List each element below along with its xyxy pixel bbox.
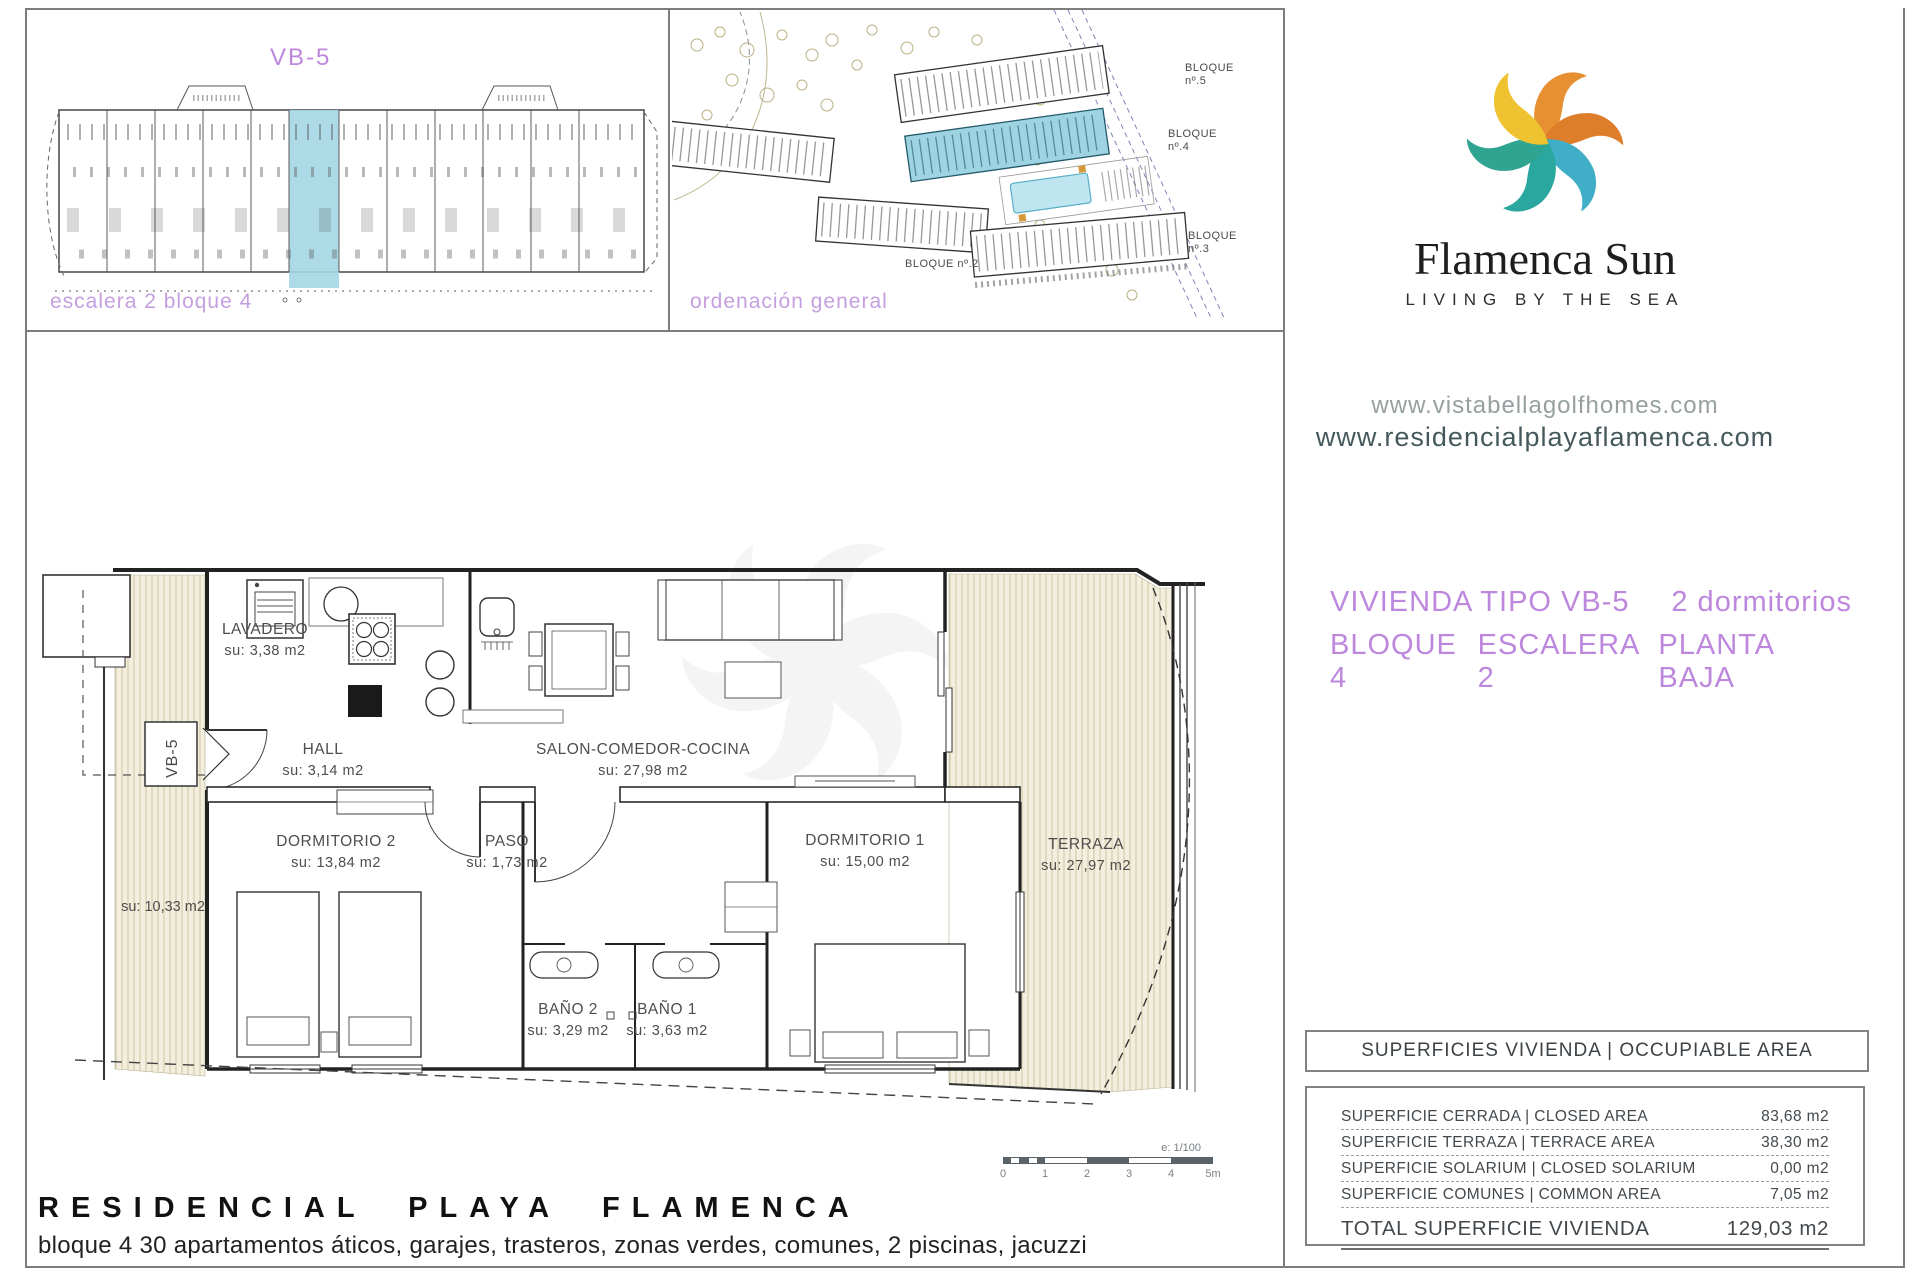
site-label-bloque3: BLOQUE nº.3 <box>1188 230 1237 255</box>
brand-name: Flamenca Sun <box>1285 232 1805 285</box>
site-plan-caption: ordenación general <box>690 290 888 314</box>
flamenca-sun-logo <box>1465 62 1625 222</box>
scale-tick: 3 <box>1126 1168 1132 1180</box>
room-label-salon: SALON-COMEDOR-COCINA su: 27,98 m2 <box>536 739 750 781</box>
url-residencialplayaflamenca[interactable]: www.residencialplayaflamenca.com <box>1285 422 1805 453</box>
footer-title: RESIDENCIAL PLAYA FLAMENCA <box>38 1192 861 1225</box>
room-label-lavadero: LAVADERO su: 3,38 m2 <box>222 619 308 661</box>
floor-plan-drawing: VB-5 <box>25 332 1285 1268</box>
scale-tick: 4 <box>1168 1168 1174 1180</box>
site-label-bloque4: BLOQUE nº.4 <box>1168 128 1217 153</box>
site-plan-drawing <box>672 10 1283 330</box>
brand-tagline: LIVING BY THE SEA <box>1285 290 1805 310</box>
site-label-bloque5: BLOQUE nº.5 <box>1185 62 1234 87</box>
url-vistabellagolfhomes[interactable]: www.vistabellagolfhomes.com <box>1285 392 1805 420</box>
block-plan-drawing <box>27 10 667 330</box>
divider-panels <box>668 8 670 332</box>
room-label-bano1: BAÑO 1 su: 3,63 m2 <box>626 999 707 1041</box>
surfaces-table: SUPERFICIE CERRADA | CLOSED AREA 83,68 m… <box>1305 1086 1865 1246</box>
unit-type: VIVIENDA TIPO VB-5 <box>1330 586 1630 619</box>
room-label-paso: PASO su: 1,73 m2 <box>466 831 547 873</box>
frame-right <box>1903 8 1905 1268</box>
side-terrace-area-label: su: 10,33 m2 <box>121 899 205 915</box>
table-row-closed-area: SUPERFICIE CERRADA | CLOSED AREA 83,68 m… <box>1341 1104 1829 1130</box>
unit-floor: PLANTA BAJA <box>1658 629 1852 695</box>
room-label-hall: HALL su: 3,14 m2 <box>282 739 363 781</box>
table-row-terrace-area: SUPERFICIE TERRAZA | TERRACE AREA 38,30 … <box>1341 1130 1829 1156</box>
table-row-common-area: SUPERFICIE COMUNES | COMMON AREA 7,05 m2 <box>1341 1182 1829 1208</box>
brochure-page: VB-5 escalera 2 bloque 4 <box>0 0 1920 1280</box>
site-label-bloque2: BLOQUE nº.2 <box>905 258 979 271</box>
footer-subtitle: bloque 4 30 apartamentos áticos, garajes… <box>38 1232 1087 1260</box>
unit-header: VIVIENDA TIPO VB-5 2 dormitorios BLOQUE … <box>1330 586 1852 705</box>
scale-tick: 1 <box>1042 1168 1048 1180</box>
room-label-terraza: TERRAZA su: 27,97 m2 <box>1041 834 1131 876</box>
scale-tick: 2 <box>1084 1168 1090 1180</box>
scale-bar: e: 1/100 0 1 2 3 4 5m <box>1003 1142 1215 1182</box>
floorplan-vb5-tag: VB-5 <box>164 738 181 778</box>
unit-stair: ESCALERA 2 <box>1478 629 1659 695</box>
room-label-dormitorio2: DORMITORIO 2 su: 13,84 m2 <box>276 831 395 873</box>
scale-tick: 0 <box>1000 1168 1006 1180</box>
room-label-bano2: BAÑO 2 su: 3,29 m2 <box>527 999 608 1041</box>
surfaces-table-header: SUPERFICIES VIVIENDA | OCCUPIABLE AREA <box>1305 1030 1869 1072</box>
table-row-solarium: SUPERFICIE SOLARIUM | CLOSED SOLARIUM 0,… <box>1341 1156 1829 1182</box>
scale-ratio-label: e: 1/100 <box>1161 1142 1201 1154</box>
unit-bedrooms: 2 dormitorios <box>1671 586 1852 619</box>
block-plan-caption: escalera 2 bloque 4 <box>50 290 252 314</box>
unit-block: BLOQUE 4 <box>1330 629 1478 695</box>
scale-tick: 5m <box>1205 1168 1220 1180</box>
table-row-total: TOTAL SUPERFICIE VIVIENDA 129,03 m2 <box>1341 1217 1829 1250</box>
room-label-dormitorio1: DORMITORIO 1 su: 15,00 m2 <box>805 830 924 872</box>
